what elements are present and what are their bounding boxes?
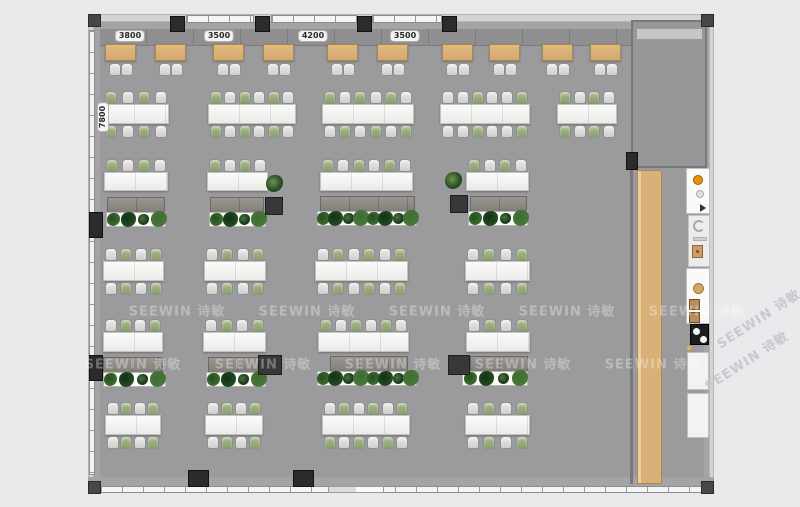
desk-table <box>322 104 414 124</box>
office-chair-white <box>134 402 146 415</box>
office-chair-green <box>516 402 528 415</box>
office-chair-green <box>516 436 528 449</box>
office-chair-green <box>516 319 528 332</box>
desk-table <box>207 172 268 191</box>
office-chair-white <box>399 159 411 172</box>
office-chair-white <box>317 248 329 261</box>
corner-column <box>701 481 714 494</box>
office-chair-white <box>500 402 512 415</box>
office-chair-white <box>237 282 249 295</box>
office-chair-white <box>486 91 498 104</box>
office-chair-white <box>159 63 171 76</box>
office-chair-white <box>224 125 236 138</box>
office-chair-white <box>338 436 350 449</box>
office-chair-white <box>105 282 117 295</box>
office-chair-green <box>332 282 344 295</box>
wooden-bench <box>637 170 662 484</box>
office-chair-green <box>268 91 280 104</box>
tan-desk <box>377 44 408 61</box>
watermark: SEEWIN 诗敏 <box>475 354 572 373</box>
corridor-divider-wall <box>630 166 633 484</box>
office-chair-white <box>237 248 249 261</box>
office-chair-green <box>320 319 332 332</box>
office-chair-green <box>483 402 495 415</box>
small-appliance <box>692 245 703 258</box>
office-chair-white <box>594 63 606 76</box>
office-chair-white <box>467 248 479 261</box>
desk-table <box>318 332 409 352</box>
desk-table <box>322 415 410 435</box>
office-chair-green <box>209 159 221 172</box>
office-chair-green <box>354 91 366 104</box>
office-chair-white <box>154 159 166 172</box>
office-chair-white <box>354 125 366 138</box>
office-chair-white <box>484 159 496 172</box>
office-chair-green <box>147 436 159 449</box>
office-chair-green <box>239 159 251 172</box>
structural-column <box>357 16 372 32</box>
tan-desk <box>489 44 520 61</box>
office-chair-white <box>224 159 236 172</box>
desk-table <box>440 104 530 124</box>
dimension-label: 3800 <box>115 30 145 42</box>
office-chair-white <box>229 63 241 76</box>
glass-partition <box>636 28 703 40</box>
office-chair-green <box>150 282 162 295</box>
office-chair-white <box>109 63 121 76</box>
watermark: SEEWIN 诗敏 <box>129 301 226 320</box>
office-chair-green <box>468 159 480 172</box>
office-chair-white <box>105 248 117 261</box>
office-chair-green <box>339 125 351 138</box>
office-chair-white <box>171 63 183 76</box>
office-chair-white <box>603 125 615 138</box>
office-chair-green <box>483 282 495 295</box>
office-chair-white <box>501 91 513 104</box>
office-chair-white <box>396 436 408 449</box>
tan-desk <box>263 44 294 61</box>
office-chair-white <box>335 319 347 332</box>
office-chair-green <box>221 282 233 295</box>
office-chair-green <box>138 125 150 138</box>
office-chair-green <box>221 436 233 449</box>
desk-table <box>466 332 530 352</box>
office-chair-white <box>393 63 405 76</box>
desk-table <box>465 261 530 281</box>
office-chair-white <box>134 436 146 449</box>
office-chair-white <box>558 63 570 76</box>
desk-table <box>203 332 266 352</box>
office-chair-white <box>134 319 146 332</box>
office-chair-white <box>122 159 134 172</box>
office-chair-white <box>122 91 134 104</box>
office-chair-white <box>395 319 407 332</box>
desk-table <box>557 104 617 124</box>
window-bottom <box>100 486 706 493</box>
desk-table <box>204 261 266 281</box>
structural-column <box>293 470 314 487</box>
office-chair-green <box>588 125 600 138</box>
office-chair-white <box>253 91 265 104</box>
burner-1 <box>693 328 700 335</box>
office-chair-white <box>105 319 117 332</box>
office-chair-white <box>370 91 382 104</box>
office-chair-white <box>467 436 479 449</box>
office-chair-white <box>365 319 377 332</box>
office-chair-green <box>249 436 261 449</box>
floor-plan-canvas: SEEWIN 诗敏SEEWIN 诗敏SEEWIN 诗敏SEEWIN 诗敏SEEW… <box>0 0 800 507</box>
desk-table <box>103 332 163 352</box>
office-chair-white <box>135 248 147 261</box>
office-chair-green <box>120 248 132 261</box>
desk-table <box>104 172 168 191</box>
storage-cabinet <box>265 197 283 215</box>
structural-column <box>170 16 185 32</box>
dimension-label: 3500 <box>204 30 234 42</box>
office-chair-white <box>348 282 360 295</box>
office-chair-white <box>442 125 454 138</box>
tan-desk <box>590 44 621 61</box>
office-chair-white <box>339 91 351 104</box>
office-chair-white <box>121 63 133 76</box>
office-chair-green <box>559 125 571 138</box>
office-chair-green <box>499 159 511 172</box>
desk-table <box>465 415 530 435</box>
office-chair-green <box>363 282 375 295</box>
office-chair-white <box>442 91 454 104</box>
office-chair-white <box>348 248 360 261</box>
office-chair-green <box>120 282 132 295</box>
office-chair-white <box>236 319 248 332</box>
office-chair-white <box>381 63 393 76</box>
office-chair-white <box>135 282 147 295</box>
office-chair-white <box>467 402 479 415</box>
office-chair-green <box>268 125 280 138</box>
desk-table <box>205 415 263 435</box>
office-chair-green <box>210 125 222 138</box>
desk-table <box>320 172 413 191</box>
burner-2 <box>700 336 707 343</box>
office-chair-white <box>206 248 218 261</box>
office-chair-white <box>205 319 217 332</box>
office-chair-white <box>606 63 618 76</box>
office-chair-green <box>394 282 406 295</box>
storage-cabinet <box>450 195 468 213</box>
office-chair-green <box>120 319 132 332</box>
office-chair-green <box>559 91 571 104</box>
credenza <box>320 196 415 212</box>
window-left <box>89 30 95 475</box>
watermark: SEEWIN 诗敏 <box>649 301 746 320</box>
office-chair-green <box>367 402 379 415</box>
pantry-panel-2 <box>688 215 710 267</box>
office-chair-white <box>574 91 586 104</box>
tan-desk <box>155 44 186 61</box>
office-chair-white <box>458 63 470 76</box>
corner-column <box>88 14 101 27</box>
office-chair-white <box>385 125 397 138</box>
office-chair-white <box>207 436 219 449</box>
office-chair-green <box>252 248 264 261</box>
tan-desk <box>542 44 573 61</box>
office-chair-white <box>253 125 265 138</box>
office-chair-green <box>516 282 528 295</box>
watermark: SEEWIN 诗敏 <box>85 354 182 373</box>
office-chair-white <box>546 63 558 76</box>
office-chair-green <box>147 402 159 415</box>
office-chair-white <box>282 91 294 104</box>
desk-table <box>315 261 408 281</box>
office-chair-green <box>120 436 132 449</box>
watermark: SEEWIN 诗敏 <box>389 301 486 320</box>
office-chair-green <box>138 91 150 104</box>
office-chair-white <box>155 91 167 104</box>
office-chair-green <box>239 91 251 104</box>
office-chair-white <box>107 402 119 415</box>
office-chair-green <box>249 402 261 415</box>
office-chair-green <box>324 91 336 104</box>
office-chair-white <box>574 125 586 138</box>
office-chair-white <box>235 436 247 449</box>
office-chair-white <box>353 402 365 415</box>
office-chair-green <box>516 125 528 138</box>
office-chair-white <box>468 319 480 332</box>
office-chair-white <box>457 125 469 138</box>
office-chair-green <box>353 159 365 172</box>
meeting-room <box>631 20 707 168</box>
office-chair-white <box>324 402 336 415</box>
desk-table <box>103 261 164 281</box>
office-chair-white <box>217 63 229 76</box>
yellow-dot <box>687 346 691 350</box>
office-chair-white <box>343 63 355 76</box>
structural-column <box>89 212 103 238</box>
structural-column <box>255 16 270 32</box>
tan-desk <box>442 44 473 61</box>
sink-icon <box>693 220 705 232</box>
tan-desk <box>327 44 358 61</box>
office-chair-white <box>282 125 294 138</box>
tan-desk <box>213 44 244 61</box>
structural-column <box>442 16 457 32</box>
office-chair-white <box>446 63 458 76</box>
shelf-bar <box>693 237 707 241</box>
watermark: SEEWIN 诗敏 <box>215 354 312 373</box>
office-chair-green <box>322 159 334 172</box>
office-chair-green <box>324 436 336 449</box>
office-chair-white <box>267 63 279 76</box>
orange-knob <box>693 175 703 185</box>
office-chair-white <box>279 63 291 76</box>
corner-column <box>88 481 101 494</box>
office-chair-green <box>385 91 397 104</box>
office-chair-white <box>500 248 512 261</box>
office-chair-green <box>363 248 375 261</box>
office-chair-green <box>516 248 528 261</box>
office-chair-green <box>350 319 362 332</box>
office-chair-green <box>472 125 484 138</box>
office-chair-green <box>380 319 392 332</box>
office-chair-green <box>384 159 396 172</box>
window-top-1 <box>186 15 254 23</box>
sliding-door-bottom <box>328 486 384 493</box>
office-chair-white <box>500 319 512 332</box>
dimension-label: 4200 <box>298 30 328 42</box>
office-chair-white <box>457 91 469 104</box>
speaker-icon <box>700 204 706 212</box>
office-chair-green <box>516 91 528 104</box>
corner-column <box>701 14 714 27</box>
office-chair-white <box>224 91 236 104</box>
office-chair-white <box>368 159 380 172</box>
watermark: SEEWIN 诗敏 <box>259 301 356 320</box>
cooktop <box>690 324 709 345</box>
office-chair-white <box>317 282 329 295</box>
window-top-2 <box>271 15 357 23</box>
office-chair-green <box>588 91 600 104</box>
office-chair-green <box>221 319 233 332</box>
office-chair-green <box>150 248 162 261</box>
office-chair-green <box>149 319 161 332</box>
watermark: SEEWIN 诗敏 <box>519 301 616 320</box>
office-chair-green <box>106 159 118 172</box>
office-chair-green <box>210 91 222 104</box>
office-chair-white <box>254 159 266 172</box>
red-dot <box>696 250 699 253</box>
office-chair-white <box>107 436 119 449</box>
desk-table <box>103 104 169 124</box>
office-chair-green <box>138 159 150 172</box>
office-chair-green <box>400 125 412 138</box>
desk-table <box>466 172 529 191</box>
office-chair-white <box>379 248 391 261</box>
office-chair-green <box>483 248 495 261</box>
structural-column <box>626 152 638 170</box>
office-chair-green <box>394 248 406 261</box>
office-chair-green <box>252 282 264 295</box>
office-chair-green <box>472 91 484 104</box>
office-chair-green <box>370 125 382 138</box>
gray-knob <box>696 190 704 198</box>
office-chair-white <box>206 282 218 295</box>
office-chair-white <box>379 282 391 295</box>
window-top-3 <box>372 15 442 23</box>
pantry-cabinet-2 <box>687 393 709 438</box>
office-chair-green <box>239 125 251 138</box>
office-chair-white <box>331 63 343 76</box>
office-chair-green <box>120 402 132 415</box>
dimension-label-vertical: 7800 <box>97 102 109 132</box>
office-chair-green <box>252 319 264 332</box>
structural-column <box>188 470 209 487</box>
office-chair-green <box>338 402 350 415</box>
office-chair-green <box>382 436 394 449</box>
dimension-label: 3500 <box>390 30 420 42</box>
office-chair-white <box>235 402 247 415</box>
office-chair-white <box>400 91 412 104</box>
desk-table <box>208 104 296 124</box>
office-chair-white <box>505 63 517 76</box>
tan-desk <box>105 44 136 61</box>
storage-cabinet <box>448 355 470 375</box>
office-chair-white <box>207 402 219 415</box>
office-chair-white <box>501 125 513 138</box>
office-chair-green <box>353 436 365 449</box>
office-chair-white <box>500 436 512 449</box>
office-chair-white <box>603 91 615 104</box>
watermark: SEEWIN 诗敏 <box>345 354 442 373</box>
office-chair-green <box>332 248 344 261</box>
office-chair-green <box>396 402 408 415</box>
office-chair-white <box>155 125 167 138</box>
office-chair-white <box>122 125 134 138</box>
office-chair-green <box>221 402 233 415</box>
office-chair-white <box>515 159 527 172</box>
office-chair-white <box>337 159 349 172</box>
watermark: SEEWIN 诗敏 <box>605 354 702 373</box>
office-chair-green <box>484 319 496 332</box>
office-chair-white <box>500 282 512 295</box>
office-chair-white <box>467 282 479 295</box>
office-chair-white <box>382 402 394 415</box>
desk-table <box>105 415 161 435</box>
wall-bottom-inner <box>88 477 714 486</box>
office-chair-white <box>367 436 379 449</box>
office-chair-green <box>221 248 233 261</box>
office-chair-white <box>493 63 505 76</box>
tan-knob <box>693 283 704 294</box>
office-chair-white <box>486 125 498 138</box>
pantry-panel-1 <box>686 168 710 214</box>
office-chair-white <box>324 125 336 138</box>
office-chair-green <box>483 436 495 449</box>
